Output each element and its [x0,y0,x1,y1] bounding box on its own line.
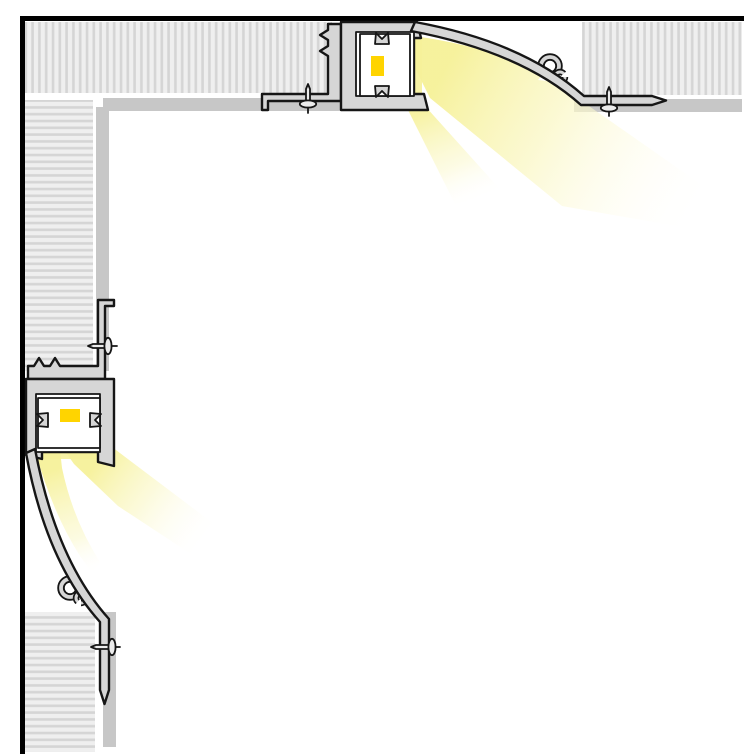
frame-left-line [20,16,25,754]
drywall-board-top-right [582,22,742,95]
drywall-board-top-left [25,22,332,93]
cross-section-diagram [0,0,754,754]
drywall-board-left-upper [25,100,93,371]
diagram-canvas [0,0,754,754]
frame-top-line [20,16,744,21]
drywall-board-left-lower [25,612,95,752]
